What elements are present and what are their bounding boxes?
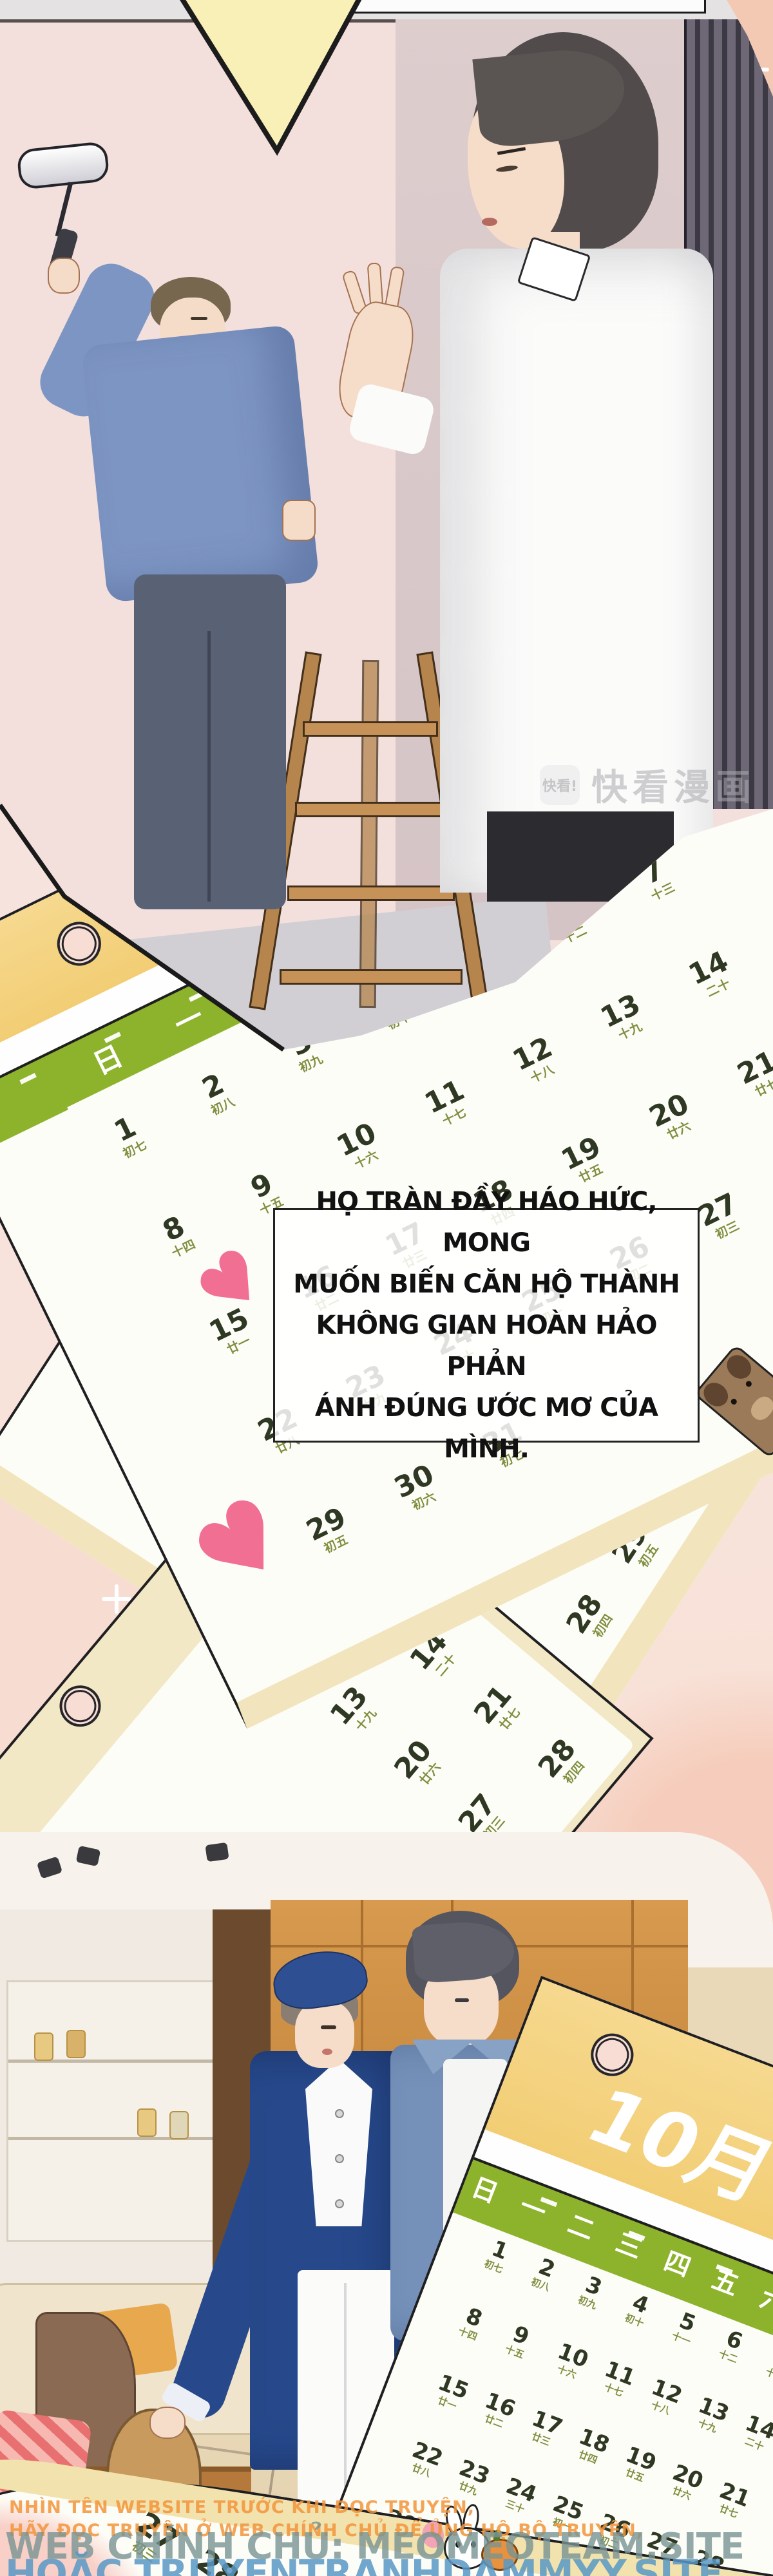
calendar-date-cell: 28初四 [534, 1734, 592, 1792]
calendar-corner-triangle [174, 0, 367, 157]
calendar-date-cell: 18廿四 [572, 2425, 613, 2468]
kuaikan-watermark: 快看! 快看漫画 [540, 759, 756, 811]
speech-line: ÁNH ĐÚNG ƯỚC MƠ CỦA MÌNH. [275, 1387, 698, 1470]
calendar-date-cell: 17廿三 [525, 2407, 566, 2450]
calendar-date-cell: 15廿一 [431, 2371, 472, 2414]
kuaikan-logo-icon: 快看! [540, 765, 580, 805]
calendar-date-cell: 20廿六 [390, 1736, 448, 1793]
calendar-date-cell: 2初八 [530, 2255, 560, 2293]
kuaikan-watermark-text: 快看漫画 [591, 759, 756, 811]
ladder-rung [303, 721, 438, 737]
ladder-rear-rail [359, 660, 379, 1008]
calendar-date-cell: 13十九 [596, 990, 651, 1045]
beret-man-eye [321, 2025, 336, 2029]
calendar-date-cell: 3初九 [577, 2273, 607, 2311]
speech-line: KHÔNG GIAN HOÀN HẢO PHẢN [275, 1305, 698, 1387]
calendar-date-cell: 9十五 [504, 2322, 534, 2360]
calendar-date-cell: 13十九 [326, 1682, 384, 1739]
denim-man-eye [455, 1998, 469, 2002]
calendar-date-cell: 20廿六 [665, 2461, 706, 2504]
painter-eye [191, 317, 207, 320]
calendar-date-cell: 2初八 [196, 1068, 237, 1117]
calendar-date-cell: 10十六 [551, 2340, 591, 2383]
speech-line: HỌ TRÀN ĐẦY HÁO HỨC, MONG [275, 1181, 698, 1264]
speech-line: MUỐN BIẾN CĂN HỘ THÀNH [275, 1264, 698, 1305]
calendar-date-cell: 15廿一 [205, 1304, 260, 1359]
painter-hand [48, 258, 80, 294]
watermark-site-line2: HOẶC TRUYENTRANHDAMMYY.SITE [5, 2552, 723, 2576]
calendar-date-cell: 21廿七 [712, 2479, 753, 2522]
beret-man-hand [149, 2407, 186, 2439]
ladder-rung [287, 885, 455, 901]
calendar-date-cell: 20廿六 [645, 1090, 700, 1145]
calendar-date-cell: 7十三 [764, 2345, 773, 2383]
calendar-date-cell: 14二十 [685, 947, 739, 1003]
picture-frame [341, 0, 706, 14]
calendar-date-cell: 19廿五 [618, 2443, 659, 2486]
beret-man-face [295, 2001, 354, 2068]
calendar-date-cell: 10十六 [333, 1119, 387, 1174]
calendar-date-cell: 16廿二 [478, 2389, 519, 2432]
calendar-date-cell: 8十四 [157, 1211, 197, 1260]
calendar-date-cell: 5十一 [671, 2309, 701, 2347]
comic-page: 9十五10十六14二十15廿一16廿二17廿三18廿四20廿六21廿七22廿八2… [0, 0, 773, 2576]
calendar-date-cell: 12十八 [509, 1033, 563, 1088]
calendar-date-cell: 8十四 [457, 2304, 487, 2342]
beret-man-mouth [322, 2049, 332, 2055]
calendar-date-cell: 13十九 [691, 2394, 732, 2436]
calendar-date-cell: 21廿七 [470, 1681, 528, 1738]
calendar-date-cell: 6十二 [717, 2327, 747, 2365]
calendar-date-cell: 21廿七 [733, 1046, 773, 1102]
calendar-date-cell: 4初十 [624, 2291, 654, 2329]
calendar-date-cell: 14二十 [738, 2412, 773, 2454]
calendar-date-cell: 27初三 [694, 1189, 748, 1245]
ladder-rung [280, 969, 463, 985]
watermark-notice-line1: NHÌN TÊN WEBSITE TRƯỚC KHI ĐỌC TRUYỆN, [9, 2497, 475, 2517]
calendar-date-cell: 1初七 [108, 1112, 149, 1160]
painter-leg-line [207, 631, 211, 902]
spotlight [205, 1842, 229, 1862]
calendar-date-cell: 29初五 [303, 1503, 357, 1558]
calendar-date-cell: 28初四 [562, 1590, 620, 1646]
sparkle-icon [115, 1584, 119, 1614]
painter-thumbs-up-hand [282, 500, 316, 541]
calendar-date-cell: 11十七 [421, 1076, 475, 1132]
painter-blue-jacket [81, 325, 320, 603]
ladder-rung [295, 802, 447, 817]
calendar-date-cell: 22廿八 [405, 2439, 446, 2481]
shelf-unit [6, 1980, 216, 2242]
man-mouth [482, 218, 497, 226]
calendar-date-cell: 1初七 [482, 2237, 513, 2275]
paint-roller [16, 141, 110, 190]
finger [367, 262, 384, 307]
calendar-date-cell: 19廿五 [557, 1133, 611, 1188]
speech-text-box: HỌ TRÀN ĐẦY HÁO HỨC, MONG MUỐN BIẾN CĂN … [273, 1208, 700, 1443]
calendar-date-cell: 12十八 [645, 2376, 685, 2418]
calendar-date-cell: 11十七 [598, 2358, 638, 2401]
calendar-date-cell: 23廿九 [452, 2457, 493, 2499]
